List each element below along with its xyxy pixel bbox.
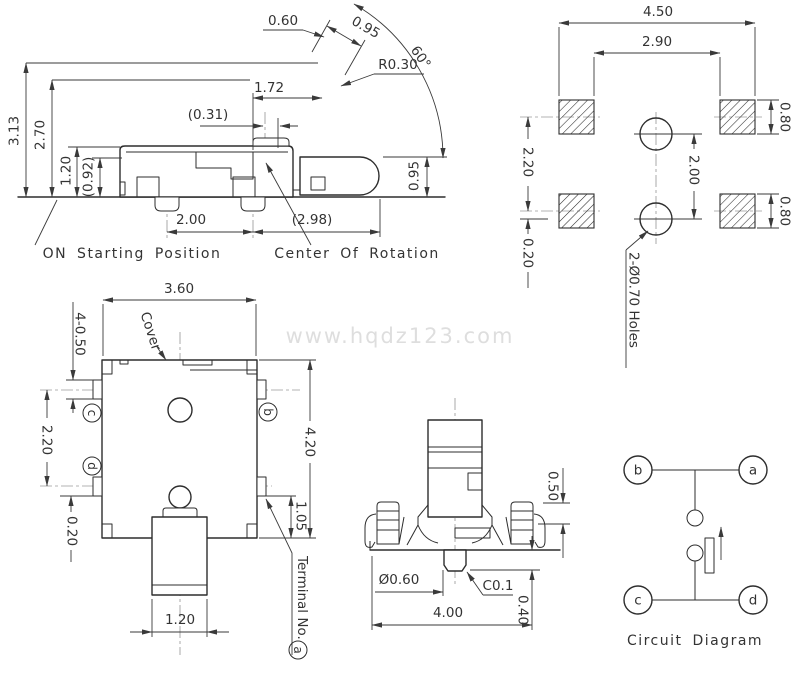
label-center-of-rotation: Center Of Rotation <box>274 246 440 262</box>
label-on-starting-position: ON Starting Position <box>43 246 222 262</box>
dim-0-80-top: 0.80 <box>776 102 792 132</box>
dim-2-70: 2.70 <box>33 120 49 150</box>
dim-0-92: (0.92) <box>81 157 97 198</box>
dim-1-20-bottom: 1.20 <box>165 612 195 628</box>
circuit-diagram-title: Circuit Diagram <box>627 633 763 649</box>
terminal-ref-a: a <box>291 646 305 653</box>
dim-1-72: 1.72 <box>254 80 284 96</box>
dim-0-31: (0.31) <box>188 107 229 123</box>
solder-pads <box>559 100 755 228</box>
label-cover: Cover <box>137 310 165 353</box>
dim-2-00: 2.00 <box>685 155 701 185</box>
dim-0-20: 0.20 <box>519 238 535 268</box>
front-view: 0.50 Ø0.60 C0.1 0.40 4.00 <box>365 398 570 630</box>
dim-0-95-top: 0.95 <box>349 13 383 42</box>
label-holes: 2-Ø0.70 Holes <box>625 252 641 348</box>
engineering-drawing: www.hqdz123.com <box>0 0 809 674</box>
circuit-diagram: b a c d Circuit Diagram <box>624 456 767 649</box>
dim-0-50: 0.50 <box>544 471 560 501</box>
drawing-sheet: www.hqdz123.com <box>0 0 809 674</box>
circuit-pin-d: d <box>749 593 758 609</box>
circuit-pin-a: a <box>749 463 757 479</box>
dim-2-20-left: 2.20 <box>38 425 54 455</box>
switch-body-outline <box>120 138 379 211</box>
dim-0-20-left: 0.20 <box>63 516 79 546</box>
dim-r0-30: R0.30 <box>378 57 417 73</box>
pcb-pattern-view: 4.50 2.90 0.80 0.80 2.20 0.20 2.00 <box>519 4 792 368</box>
dim-0-60: 0.60 <box>268 13 298 29</box>
dim-3-60: 3.60 <box>164 281 194 297</box>
circuit-pin-b: b <box>634 463 643 479</box>
dim-4-20: 4.20 <box>301 427 317 457</box>
dim-4-0-50: 4-0.50 <box>71 312 87 356</box>
pin-b-label: b <box>261 408 275 416</box>
dim-0-40: 0.40 <box>514 595 530 625</box>
dim-c0-1: C0.1 <box>483 578 514 594</box>
side-view-dimensions: 3.13 2.70 1.20 (0.92) 1.72 (0.31) 0.95 2… <box>7 4 443 237</box>
circuit-pin-c: c <box>634 593 641 609</box>
dim-0-80-bottom: 0.80 <box>776 196 792 226</box>
holes-note: 2-Ø0.70 Holes <box>625 231 648 368</box>
dim-2-90: 2.90 <box>642 34 672 50</box>
dim-4-00: 4.00 <box>433 605 463 621</box>
side-view: 3.13 2.70 1.20 (0.92) 1.72 (0.31) 0.95 2… <box>7 0 447 262</box>
pin-c-label: c <box>85 410 99 417</box>
dim-2-00: 2.00 <box>176 212 206 228</box>
pin-d-label: d <box>85 462 99 470</box>
cover-body <box>93 360 266 595</box>
watermark: www.hqdz123.com <box>286 324 515 348</box>
dim-4-50: 4.50 <box>643 4 673 20</box>
dim-1-20: 1.20 <box>59 156 75 186</box>
dim-2-20: 2.20 <box>519 147 535 177</box>
dim-1-05: 1.05 <box>292 501 308 531</box>
label-terminal-no: Terminal No. <box>294 555 310 640</box>
cover-note: Cover <box>137 310 166 360</box>
front-body <box>365 420 560 571</box>
dim-3-13: 3.13 <box>7 116 23 146</box>
dim-dia-0-60: Ø0.60 <box>379 572 420 588</box>
top-view: c d b 3.60 4-0.50 2.20 0.20 <box>38 281 317 659</box>
pcb-dimensions: 4.50 2.90 0.80 0.80 2.20 0.20 2.00 <box>519 4 792 288</box>
dim-0-95-right: 0.95 <box>407 161 423 191</box>
